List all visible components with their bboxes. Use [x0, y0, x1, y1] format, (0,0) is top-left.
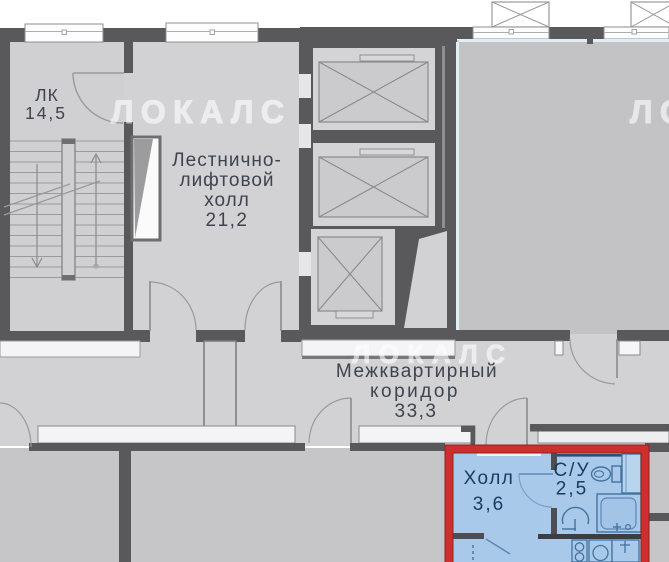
svg-text:21,2: 21,2 — [206, 210, 249, 231]
svg-text:2,5: 2,5 — [556, 479, 588, 500]
svg-text:Лестнично-: Лестнично- — [172, 150, 282, 171]
svg-text:лифтовой: лифтовой — [179, 170, 274, 191]
svg-text:ЛОКАЛС: ЛОКАЛС — [630, 94, 669, 130]
svg-text:3,6: 3,6 — [473, 494, 505, 515]
svg-text:Холл: Холл — [464, 468, 515, 489]
svg-text:холл: холл — [204, 190, 250, 211]
svg-text:14,5: 14,5 — [25, 103, 67, 123]
svg-text:ЛК: ЛК — [35, 85, 59, 105]
svg-text:33,3: 33,3 — [395, 401, 438, 422]
svg-text:Межквартирный: Межквартирный — [336, 361, 498, 382]
svg-text:коридор: коридор — [370, 381, 460, 402]
svg-text:ЛОКАЛС: ЛОКАЛС — [111, 94, 291, 130]
